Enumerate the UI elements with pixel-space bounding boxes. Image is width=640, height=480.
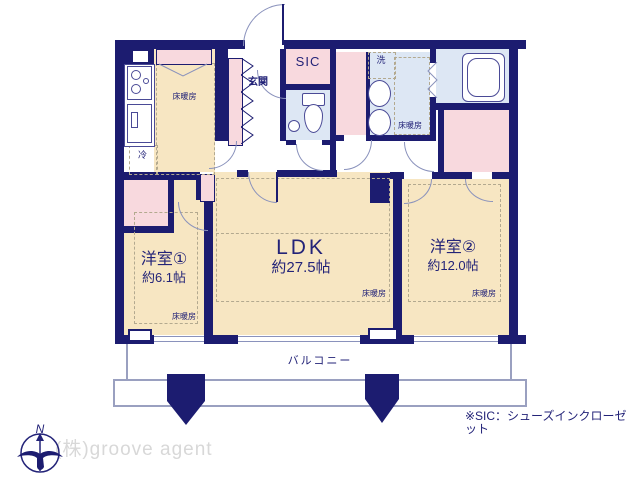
laundry-label: 洗	[369, 56, 393, 66]
top-wall-right	[284, 40, 526, 49]
bedroom2-area: 約12.0帖	[413, 259, 493, 273]
balcony-rail-right-cap	[525, 379, 527, 407]
washroom-heating-label: 床暖房	[390, 122, 430, 131]
sic-note: ※SIC：シューズインクローゼット	[465, 410, 635, 436]
kitchen-heating-label: 床暖房	[156, 93, 213, 102]
counter-sightline	[156, 63, 210, 79]
stove-burner-1	[131, 70, 141, 80]
hall-closet-floor	[336, 52, 366, 135]
ldk-heating-label: 床暖房	[318, 290, 386, 299]
bedroom1-door-leaf	[206, 202, 208, 230]
vanity-sink-1	[368, 80, 391, 107]
balcony-marker-right	[365, 374, 399, 399]
right-wall	[509, 40, 518, 344]
kitchen-heating-zone	[156, 63, 215, 175]
bedroom1-area: 約6.1帖	[130, 271, 198, 285]
sic-toilet-wall	[286, 84, 330, 90]
bath-bottom-wall	[430, 103, 509, 110]
wic-left-wall	[438, 110, 444, 172]
wic-floor	[444, 110, 509, 172]
ldk-bedroom2-wall	[393, 179, 402, 335]
washroom-bath-wall-top	[430, 49, 436, 63]
sic-label: SIC	[286, 55, 330, 69]
toilet-sink	[288, 120, 300, 132]
toilet-bottom-wall-a	[286, 140, 296, 145]
balcony-label: バルコニー	[275, 355, 365, 367]
bottom-wall-b	[204, 335, 238, 344]
vanity-sink-2	[368, 109, 391, 136]
bedroom1-window	[154, 336, 204, 342]
washroom-bottom-wall-a	[336, 135, 344, 141]
stove-knob	[143, 78, 149, 84]
floor-plan: 玄関 SIC 洗 冷 床暖房 床暖房 LDK 約27.5帖 床暖房 洋室① 約6…	[0, 0, 640, 480]
front-door-arc	[243, 4, 285, 46]
washroom-bottom-wall-b	[366, 135, 434, 141]
balcony-marker-left	[167, 374, 205, 401]
fridge-label: 冷	[131, 151, 154, 161]
shoe-cabinet-zigzag	[241, 58, 255, 144]
ldk-area: 約27.5帖	[243, 260, 359, 277]
balcony-rail-left-cap	[113, 379, 115, 407]
bedroom1-door-column	[200, 174, 215, 202]
ldk-heating-divider	[216, 233, 388, 234]
kitchen-hall-wall	[215, 49, 228, 141]
balcony-left-edge	[126, 344, 128, 380]
left-wall	[115, 40, 124, 344]
ldk-window	[238, 336, 360, 342]
ldk-name: LDK	[243, 236, 359, 259]
kitchen-faucet	[131, 112, 138, 128]
hall-ldk-wall-b	[277, 170, 337, 177]
bedroom2-window	[414, 336, 498, 342]
balcony-marker-right-tip	[365, 399, 399, 423]
bedroom1-name: 洋室①	[130, 251, 198, 269]
bedroom2-heating-label: 床暖房	[428, 290, 496, 299]
bedroom2-top-wall-a	[390, 172, 404, 179]
bifold-door	[427, 62, 439, 98]
ldk-door-leaf	[276, 172, 278, 202]
entrance-label: 玄関	[240, 77, 276, 88]
bathtub-inner	[467, 58, 500, 97]
bedroom1-heating-label: 床暖房	[130, 313, 196, 322]
toilet-closet-wall	[330, 49, 336, 170]
bedroom2-name: 洋室②	[415, 239, 491, 257]
balcony-right-edge	[510, 344, 512, 380]
balcony-marker-left-tip	[167, 401, 205, 425]
bottom-wall-d	[498, 335, 526, 344]
bedroom2-top-wall-c	[492, 172, 509, 179]
toilet-bottom-wall-b	[322, 140, 330, 145]
front-door-leaf	[282, 4, 284, 45]
north-compass-icon: N	[12, 420, 68, 478]
top-wall-left	[115, 40, 245, 49]
hall-ldk-wall-a	[237, 170, 248, 177]
bedroom2-top-wall-b	[432, 172, 472, 179]
shutter-box-left	[128, 329, 152, 342]
shutter-box-right	[368, 328, 398, 341]
stove-burner-2	[131, 84, 141, 94]
company-watermark: (株)groove agent	[55, 440, 275, 461]
wall-notch	[133, 51, 148, 62]
